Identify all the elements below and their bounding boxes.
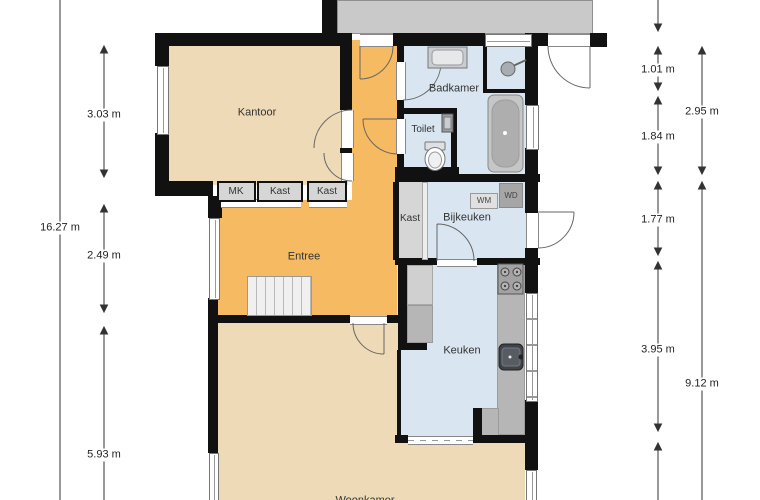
appliance-label-wm: WM (477, 197, 491, 205)
closet-label-kast: Kast (270, 187, 290, 197)
wall-segment (155, 33, 169, 66)
wall-segment (477, 258, 540, 265)
appliance-label-wd: WD (504, 192, 517, 200)
dimension-label: 9.12 m (682, 378, 722, 391)
dimension-label: 2.49 m (84, 250, 124, 263)
wall-segment (208, 298, 218, 453)
room-label-entree: Entree (288, 252, 320, 263)
room-label-bijkeuken: Bijkeuken (443, 213, 491, 224)
wall-segment (387, 315, 398, 323)
room-label-kast: Kast (400, 214, 420, 224)
closet-label-kast: Kast (317, 187, 337, 197)
wall-segment (483, 89, 527, 93)
dimension-label: 5.93 m (84, 449, 124, 462)
wall-segment (397, 100, 404, 108)
wall-segment (397, 350, 401, 443)
wall-segment (525, 248, 538, 293)
kitchen-cabinet (407, 305, 433, 343)
room-label-kantoor: Kantoor (238, 108, 277, 119)
window (485, 34, 532, 47)
dimension-label: 1.84 m (638, 131, 678, 144)
wall-segment (155, 33, 352, 46)
wall-segment (397, 154, 404, 168)
wall-segment (525, 148, 538, 213)
door-opening (526, 213, 539, 248)
wall-segment (398, 343, 427, 350)
door-opening (396, 62, 406, 100)
window (157, 66, 169, 135)
wall-segment (340, 46, 352, 110)
kitchen-cabinet (407, 265, 433, 305)
wall-segment (218, 315, 350, 323)
wall-segment (322, 0, 337, 34)
dimension-label: 16.27 m (37, 222, 83, 235)
dimension-label: 1.01 m (638, 64, 678, 77)
wall-segment (395, 167, 459, 182)
door-opening (341, 153, 354, 181)
floor-plan: Kantoor Badkamer Toilet Kast Bijkeuken E… (0, 0, 760, 500)
stairs-icon (247, 276, 312, 316)
wall-segment (398, 262, 407, 347)
window (209, 453, 219, 500)
window (526, 470, 537, 500)
closet-label-mk: MK (229, 187, 244, 197)
room-label-toilet: Toilet (411, 125, 434, 135)
dimension-label: 3.03 m (84, 109, 124, 122)
wall-segment (525, 400, 538, 470)
room-label-badkamer: Badkamer (429, 84, 479, 95)
dimension-label: 2.95 m (682, 106, 722, 119)
window (209, 218, 220, 300)
room-label-keuken: Keuken (443, 346, 480, 357)
wall-segment (473, 408, 482, 438)
room-woonkamer-floor (398, 440, 525, 500)
wall-segment (395, 435, 408, 443)
door-opening (396, 119, 406, 154)
closet-door-panel (422, 182, 428, 260)
kitchen-counter (497, 262, 525, 435)
door-opening (437, 259, 477, 267)
dimension-label: 1.77 m (638, 214, 678, 227)
wall-segment (590, 33, 607, 47)
wall-segment (155, 181, 213, 196)
wall-segment (397, 108, 455, 114)
wall-segment (393, 33, 485, 46)
wall-segment (397, 46, 404, 62)
passage-opening (408, 436, 473, 445)
dimension-label: 3.95 m (638, 344, 678, 357)
room-woonkamer-floor (215, 320, 400, 500)
wall-segment (393, 182, 399, 260)
door-arc (538, 212, 574, 248)
outbuilding-area (337, 0, 593, 34)
door-arc (548, 46, 590, 88)
wall-segment (451, 108, 457, 172)
door-opening (548, 34, 590, 47)
window (526, 105, 539, 150)
room-label-woonkamer: Woonkamer (335, 496, 394, 500)
window (526, 293, 538, 402)
door-opening (350, 316, 387, 325)
door-opening (341, 110, 354, 148)
front-door-opening (360, 34, 393, 47)
wall-segment (483, 43, 487, 91)
